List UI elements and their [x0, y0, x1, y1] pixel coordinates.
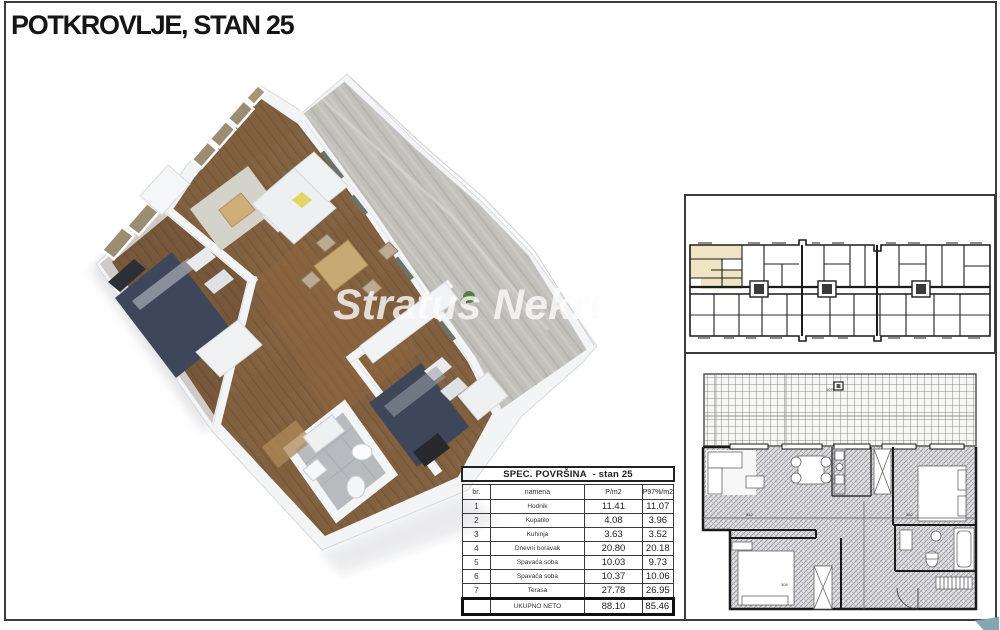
svg-text:302: 302 [906, 512, 913, 517]
svg-text:1076: 1076 [826, 387, 836, 392]
svg-text:308: 308 [781, 582, 788, 587]
svg-text:512: 512 [746, 512, 753, 517]
